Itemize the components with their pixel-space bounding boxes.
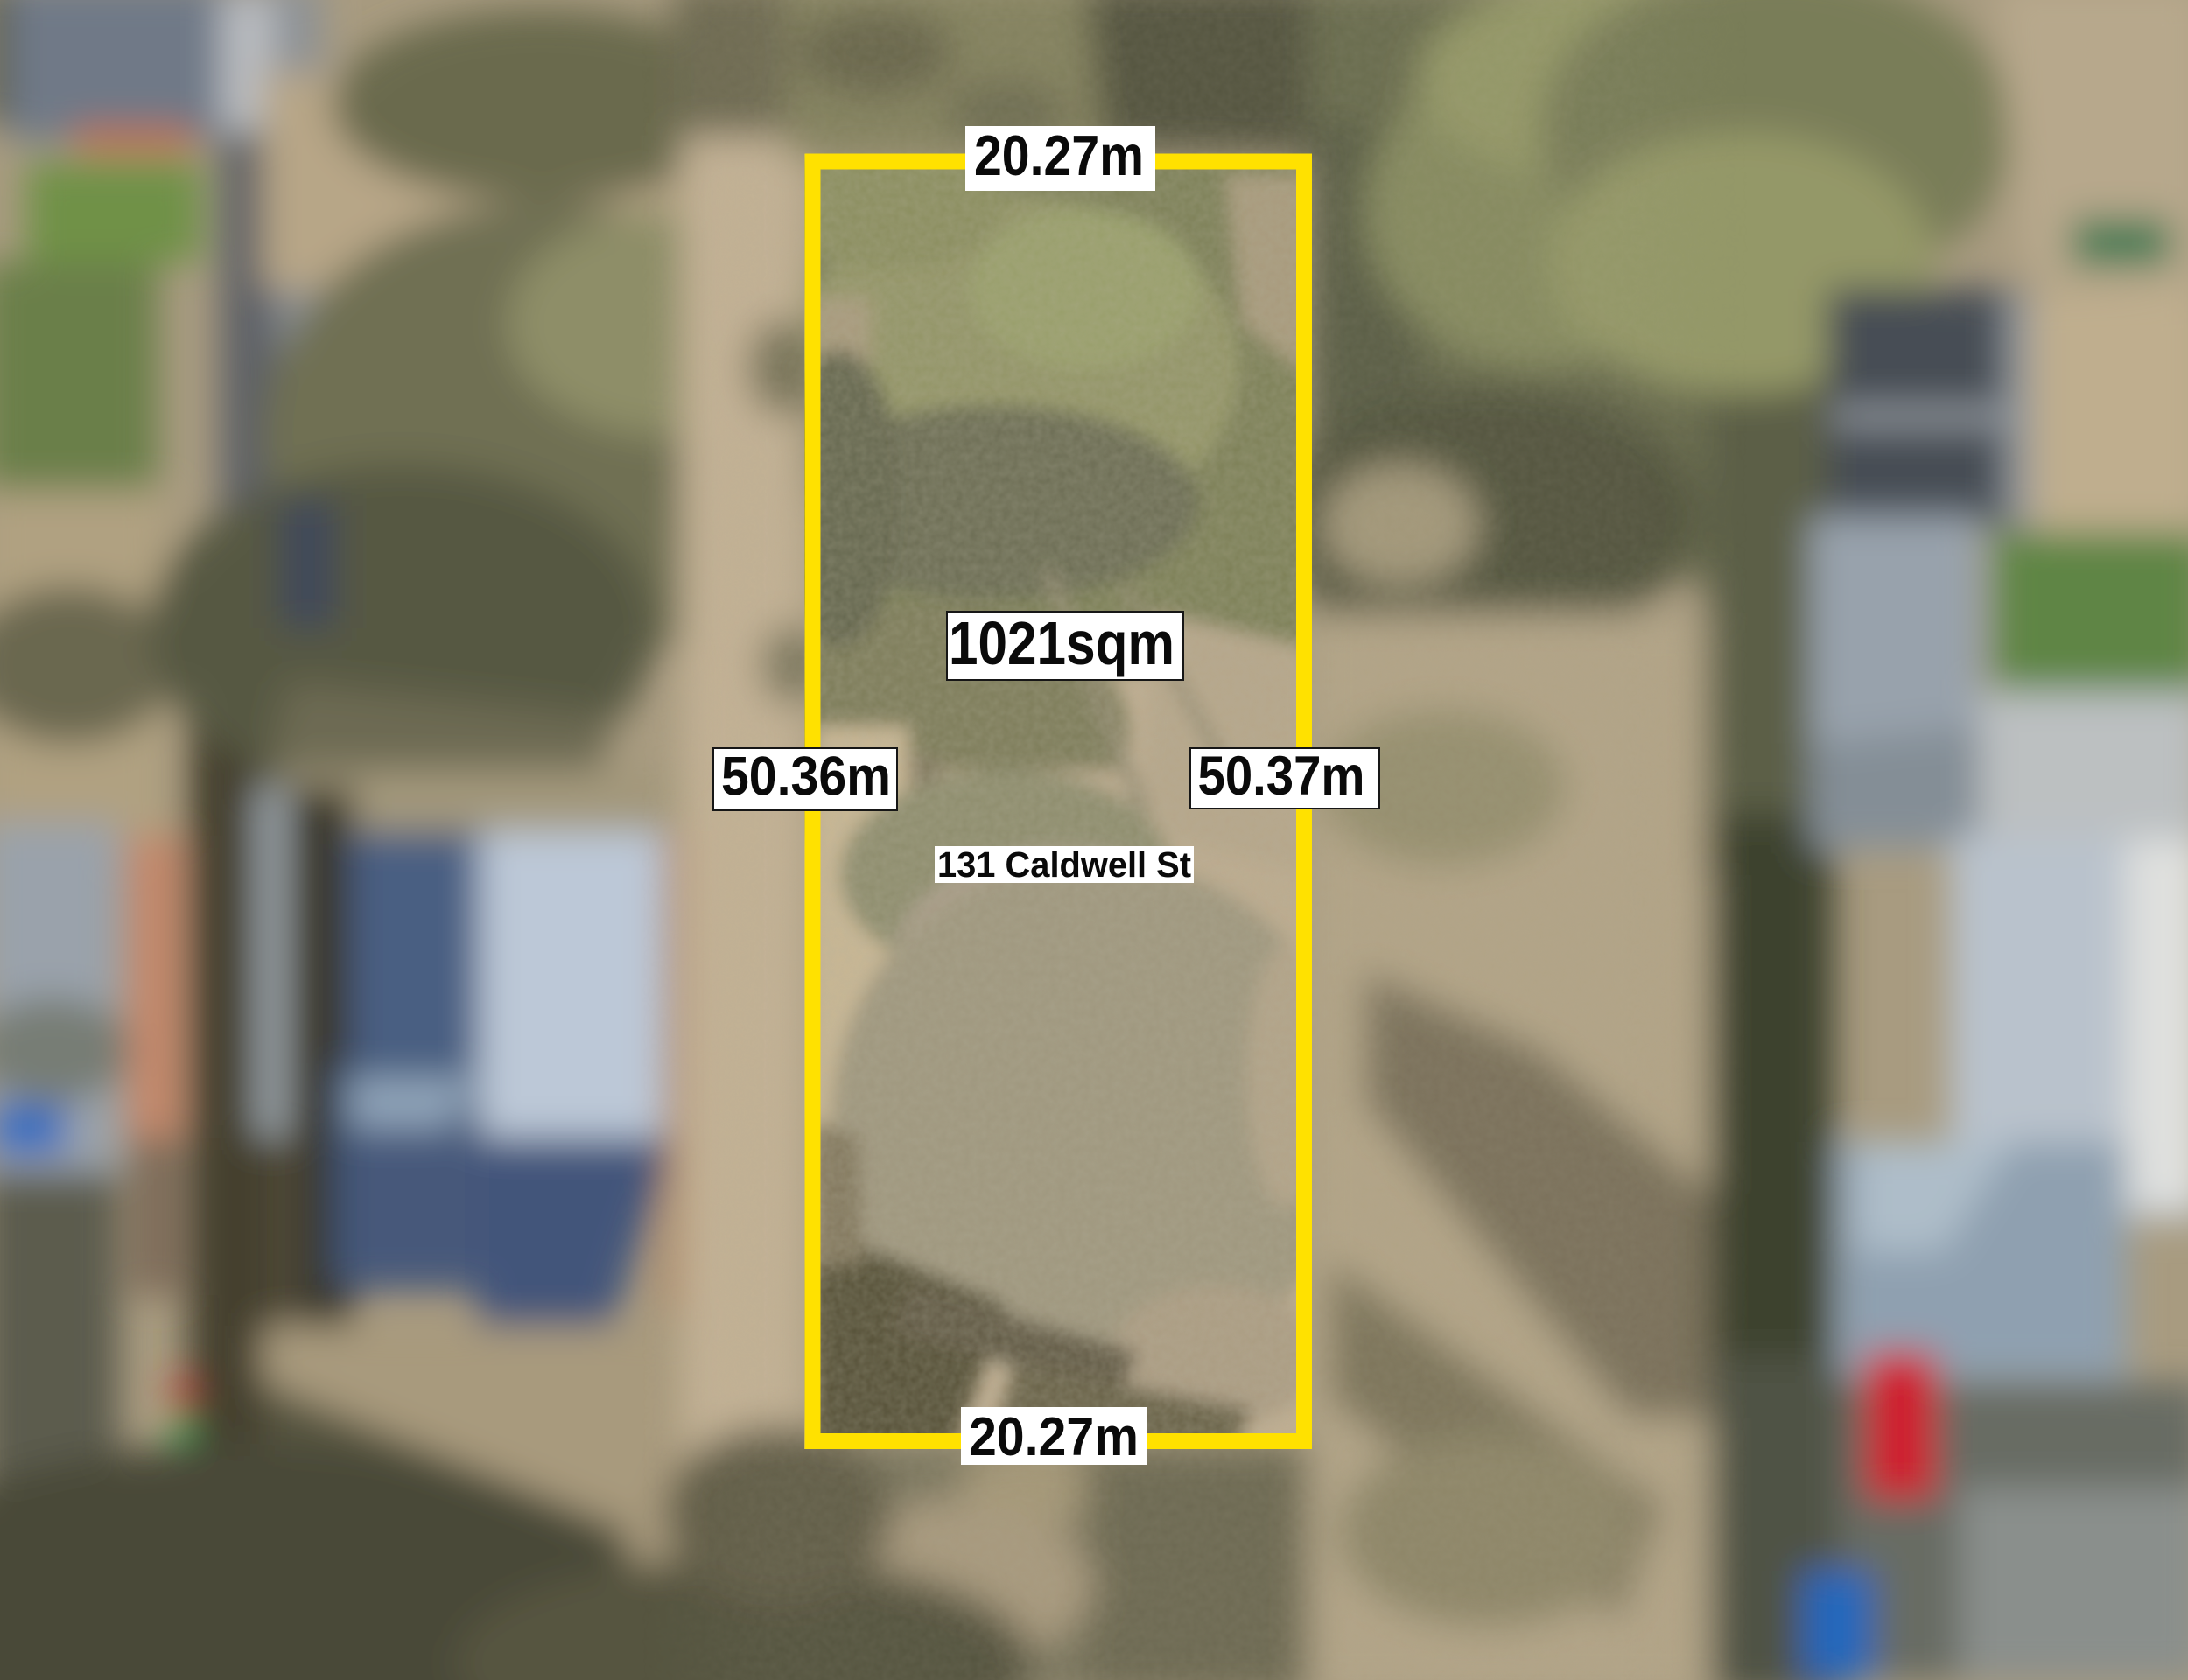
svg-text:50.37m: 50.37m	[1198, 745, 1365, 807]
svg-text:50.36m: 50.36m	[721, 746, 891, 808]
svg-text:20.27m: 20.27m	[969, 1407, 1139, 1467]
svg-text:20.27m: 20.27m	[974, 124, 1144, 187]
svg-text:131 Caldwell St: 131 Caldwell St	[937, 844, 1191, 885]
svg-text:1021sqm: 1021sqm	[949, 609, 1175, 677]
